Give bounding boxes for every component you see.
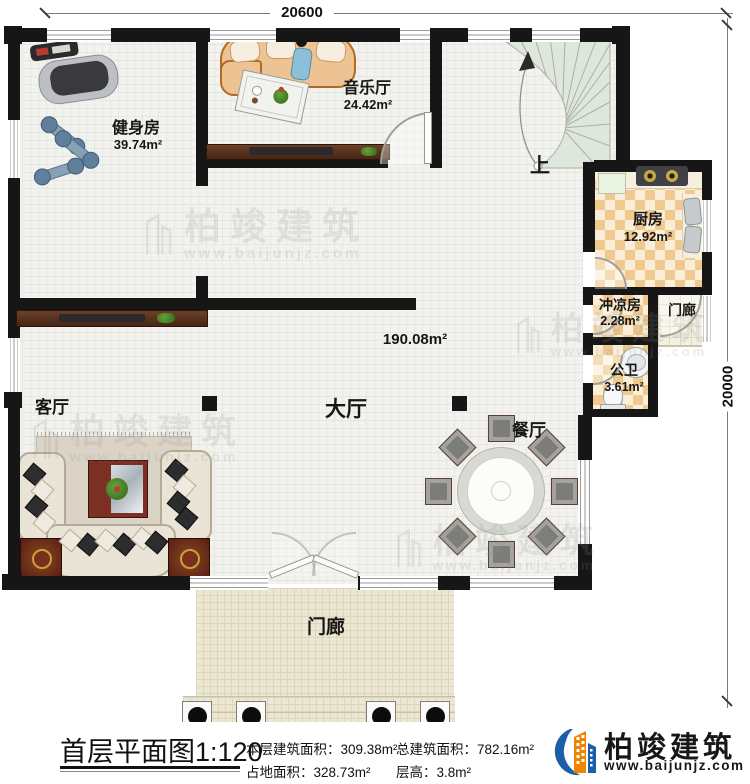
dining-chair bbox=[488, 541, 515, 568]
floor-plan-canvas: 20600 20000 bbox=[0, 0, 750, 784]
wall-kitchen-left bbox=[583, 162, 595, 252]
door-leaf bbox=[424, 112, 432, 164]
stairs-up-label: 上 bbox=[526, 155, 554, 177]
dining-chair bbox=[425, 478, 452, 505]
plant-decor bbox=[157, 313, 175, 323]
window bbox=[360, 576, 438, 590]
hall-area-label: 190.08m² bbox=[368, 332, 462, 349]
window bbox=[47, 28, 111, 42]
window bbox=[8, 338, 20, 392]
plan-title: 首层平面图1:120 bbox=[60, 730, 263, 769]
tv bbox=[249, 147, 333, 155]
dining-chair bbox=[551, 478, 578, 505]
room-label-porch: 门廊 bbox=[298, 618, 354, 639]
room-area-kitchen: 12.92m² bbox=[612, 230, 684, 244]
room-label-music: 音乐厅 bbox=[336, 80, 398, 98]
dimension-right-label: 20000 bbox=[720, 362, 737, 412]
wall-corner bbox=[4, 26, 22, 44]
room-label-wc: 公卫 bbox=[596, 363, 652, 378]
dimension-top-label: 20600 bbox=[270, 4, 334, 21]
room-label-shower: 冲凉房 bbox=[588, 298, 652, 313]
stat-floor-area: 本层建筑面积：309.38m² bbox=[246, 738, 398, 758]
room-area-wc: 3.61m² bbox=[592, 381, 656, 395]
music-tv-cabinet bbox=[206, 144, 390, 160]
window bbox=[210, 28, 276, 42]
dining-table bbox=[457, 447, 545, 535]
window bbox=[400, 28, 430, 42]
room-area-gym: 39.74m² bbox=[106, 138, 170, 152]
room-area-music: 24.42m² bbox=[336, 98, 400, 112]
porch-step-line bbox=[183, 712, 455, 713]
room-label-porch-right: 门廊 bbox=[658, 303, 706, 318]
brand-logo-icon bbox=[548, 722, 602, 780]
room-label-dining: 餐厅 bbox=[504, 422, 554, 441]
wall-shower-wc-divider bbox=[583, 337, 658, 345]
coffee-table bbox=[88, 460, 148, 518]
window bbox=[470, 576, 554, 590]
tv bbox=[59, 314, 145, 322]
end-table bbox=[20, 538, 62, 578]
structural-column bbox=[452, 396, 467, 411]
wall-gym-hall-divider bbox=[8, 298, 416, 310]
room-label-kitchen: 厨房 bbox=[612, 212, 684, 229]
stat-total-area: 总建筑面积：782.16m² bbox=[396, 738, 534, 758]
wall-wc-bottom bbox=[583, 409, 658, 417]
window bbox=[578, 460, 592, 544]
title-underline-thin bbox=[60, 771, 240, 772]
treadmill bbox=[21, 32, 127, 121]
window bbox=[532, 28, 580, 42]
hall-tv-cabinet bbox=[16, 310, 208, 327]
window bbox=[468, 28, 510, 42]
room-label-hall: 大厅 bbox=[318, 398, 374, 421]
end-table bbox=[168, 538, 210, 578]
stat-storey-height: 层高：3.8m² bbox=[396, 761, 471, 781]
staircase bbox=[492, 36, 618, 172]
dumbbells bbox=[30, 118, 116, 192]
kitchen-sink bbox=[683, 225, 703, 254]
stat-land-area: 占地面积：328.73m² bbox=[246, 761, 371, 781]
room-label-gym: 健身房 bbox=[106, 120, 166, 138]
wall-stair-right bbox=[616, 28, 630, 172]
structural-column bbox=[202, 396, 217, 411]
room-area-shower: 2.28m² bbox=[588, 315, 652, 329]
brand-url: www.baijunjz.com bbox=[604, 758, 745, 773]
title-underline bbox=[60, 766, 240, 769]
dimension-line-top bbox=[45, 13, 733, 14]
wall-corner bbox=[4, 392, 22, 408]
fridge bbox=[598, 173, 626, 194]
stove bbox=[636, 166, 688, 186]
window bbox=[8, 120, 20, 178]
porch-floor bbox=[196, 588, 454, 700]
window bbox=[190, 576, 268, 590]
kitchen-sink bbox=[683, 197, 703, 226]
plant-decor bbox=[361, 147, 377, 156]
window bbox=[702, 200, 712, 252]
room-label-living: 客厅 bbox=[28, 399, 76, 418]
footer: 首层平面图1:120 本层建筑面积：309.38m² 占地面积：328.73m²… bbox=[0, 722, 750, 784]
wall-stub bbox=[196, 276, 208, 300]
